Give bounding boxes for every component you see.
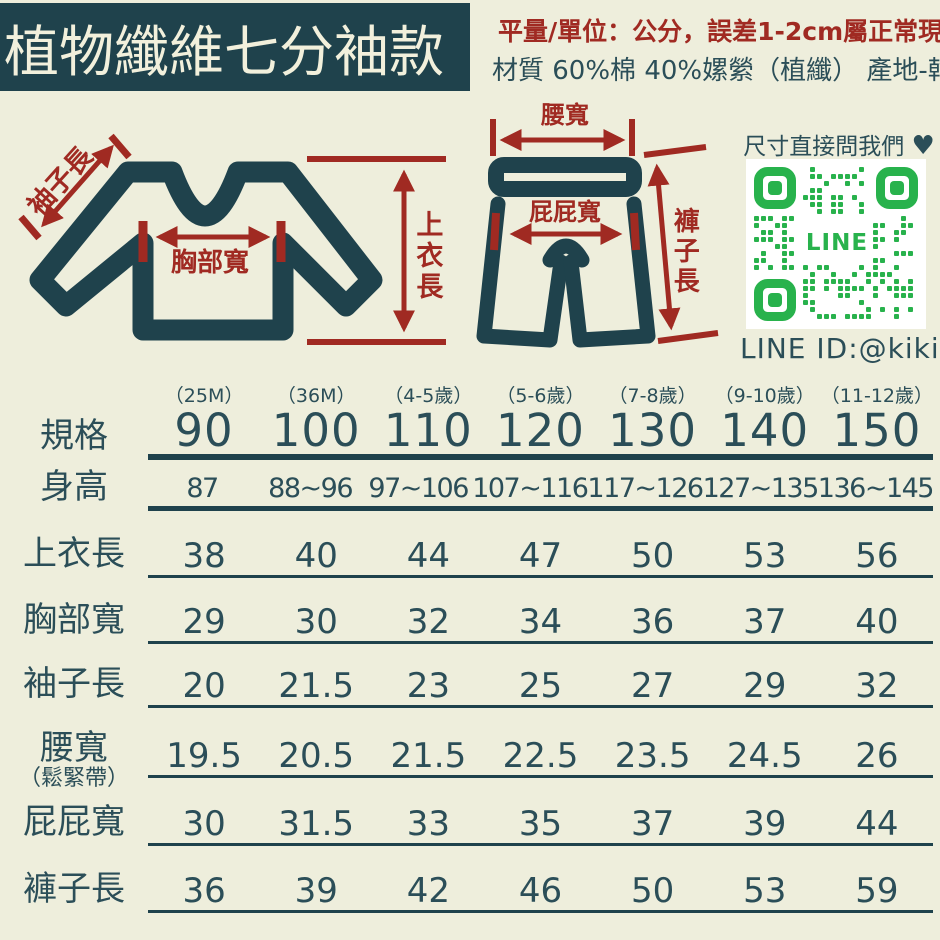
sleeve-arrow-cap-top xyxy=(111,136,129,157)
waist-width-label: 腰寬 xyxy=(523,103,607,128)
value-cell: 46 xyxy=(484,874,596,910)
qr-line-text: LINE xyxy=(806,230,868,256)
value-cell: 59 xyxy=(821,874,933,910)
row-label-sleeve-length: 袖子長 xyxy=(0,644,148,708)
row-label-top-length: 上衣長 xyxy=(0,511,148,578)
value-cell: 21.5 xyxy=(372,739,484,775)
title-banner: 植物纖維七分袖款 xyxy=(0,3,470,91)
size-header-cell: （36M）100 xyxy=(260,386,372,454)
pantlen-cap-top xyxy=(644,147,706,155)
shirt-diagram xyxy=(0,100,470,380)
value-cell: 53 xyxy=(709,874,821,910)
row-label-hip-width: 屁屁寬 xyxy=(0,778,148,846)
value-cell: 88~96 xyxy=(256,475,364,506)
value-cell: 127~135 xyxy=(703,475,818,506)
line-qr-code: LINE xyxy=(746,159,926,329)
pantlen-cap-bottom xyxy=(658,333,718,341)
value-cell: 30 xyxy=(260,605,372,641)
value-cell: 20 xyxy=(148,669,260,705)
heart-icon: ♥ xyxy=(912,131,935,161)
value-cell: 36 xyxy=(148,874,260,910)
value-cell: 30 xyxy=(148,807,260,843)
hip-width-label: 屁屁寬 xyxy=(513,200,617,225)
value-cell: 44 xyxy=(821,807,933,843)
page-title: 植物纖維七分袖款 xyxy=(0,7,444,87)
value-cell: 29 xyxy=(148,605,260,641)
value-cell: 107~116 xyxy=(472,475,587,506)
row-label-height: 身高 xyxy=(0,460,148,511)
value-cell: 21.5 xyxy=(260,669,372,705)
value-cell: 24.5 xyxy=(709,739,821,775)
value-cell: 27 xyxy=(597,669,709,705)
value-cell: 20.5 xyxy=(260,739,372,775)
value-cell: 50 xyxy=(597,539,709,575)
pants-length-label: 褲子長 xyxy=(670,200,697,304)
value-cell: 22.5 xyxy=(484,739,596,775)
value-cell: 87 xyxy=(148,475,256,506)
size-header-cell: （11-12歲）150 xyxy=(821,386,933,454)
value-cell: 40 xyxy=(260,539,372,575)
table-row-hip-width: 屁屁寬 30 31.5 33 35 37 39 44 xyxy=(0,778,940,846)
value-cell: 25 xyxy=(484,669,596,705)
value-cell: 34 xyxy=(484,605,596,641)
chest-width-label: 胸部寬 xyxy=(150,250,270,277)
value-cell: 38 xyxy=(148,539,260,575)
table-row-height: 身高 87 88~96 97~106 107~116 117~126 127~1… xyxy=(0,460,940,511)
size-header-cell: （25M）90 xyxy=(148,386,260,454)
hip-tick-right xyxy=(634,213,636,250)
table-row-spec: 規格 （25M）90 （36M）100 （4-5歲）110 （5-6歲）120 … xyxy=(0,385,940,460)
size-header-cell: （9-10歲）140 xyxy=(709,386,821,454)
value-cell: 39 xyxy=(260,874,372,910)
size-header-cell: （5-6歲）120 xyxy=(484,386,596,454)
value-cell: 23.5 xyxy=(597,739,709,775)
value-cell: 97~106 xyxy=(364,475,472,506)
waistband-outline xyxy=(496,165,634,189)
value-cell: 50 xyxy=(597,874,709,910)
value-cell: 136~145 xyxy=(818,475,933,506)
table-row-waist-width: 腰寬 （鬆緊帶） 19.5 20.5 21.5 22.5 23.5 24.5 2… xyxy=(0,708,940,778)
table-row-top-length: 上衣長 38 40 44 47 50 53 56 xyxy=(0,511,940,578)
size-header-cell: （7-8歲）130 xyxy=(597,386,709,454)
line-id: LINE ID:@kikis xyxy=(740,332,938,365)
value-cell: 40 xyxy=(821,605,933,641)
table-row-chest-width: 胸部寬 29 30 32 34 36 37 40 xyxy=(0,578,940,644)
value-cell: 29 xyxy=(709,669,821,705)
value-cell: 47 xyxy=(484,539,596,575)
ask-us-text: 尺寸直接問我們 ♥ xyxy=(740,127,938,161)
table-row-sleeve-length: 袖子長 20 21.5 23 25 27 29 32 xyxy=(0,644,940,708)
value-cell: 33 xyxy=(372,807,484,843)
value-cell: 19.5 xyxy=(148,739,260,775)
row-label-spec: 規格 xyxy=(0,385,148,460)
value-cell: 44 xyxy=(372,539,484,575)
table-row-pants-length: 褲子長 36 39 42 46 50 53 59 xyxy=(0,846,940,913)
value-cell: 32 xyxy=(821,669,933,705)
top-length-label: 上衣長 xyxy=(412,206,440,306)
value-cell: 39 xyxy=(709,807,821,843)
value-cell: 42 xyxy=(372,874,484,910)
measurement-note: 平量/單位：公分，誤差1-2cm屬正常現象 xyxy=(498,12,938,48)
row-label-waist-width: 腰寬 （鬆緊帶） xyxy=(0,708,148,778)
value-cell: 117~126 xyxy=(587,475,702,506)
hip-tick-left xyxy=(494,213,496,250)
value-cell: 37 xyxy=(597,807,709,843)
value-cell: 56 xyxy=(821,539,933,575)
value-cell: 35 xyxy=(484,807,596,843)
size-header-cell: （4-5歲）110 xyxy=(372,386,484,454)
row-label-chest-width: 胸部寬 xyxy=(0,578,148,644)
value-cell: 32 xyxy=(372,605,484,641)
value-cell: 53 xyxy=(709,539,821,575)
value-cell: 37 xyxy=(709,605,821,641)
size-chart-page: 植物纖維七分袖款 平量/單位：公分，誤差1-2cm屬正常現象 材質 60%棉 4… xyxy=(0,0,940,940)
value-cell: 26 xyxy=(821,739,933,775)
row-label-pants-length: 褲子長 xyxy=(0,846,148,913)
value-cell: 31.5 xyxy=(260,807,372,843)
value-cell: 23 xyxy=(372,669,484,705)
value-cell: 36 xyxy=(597,605,709,641)
size-table: 規格 （25M）90 （36M）100 （4-5歲）110 （5-6歲）120 … xyxy=(0,385,940,913)
material-note: 材質 60%棉 40%嫘縈（植纖） 產地-韓國 xyxy=(492,50,938,87)
